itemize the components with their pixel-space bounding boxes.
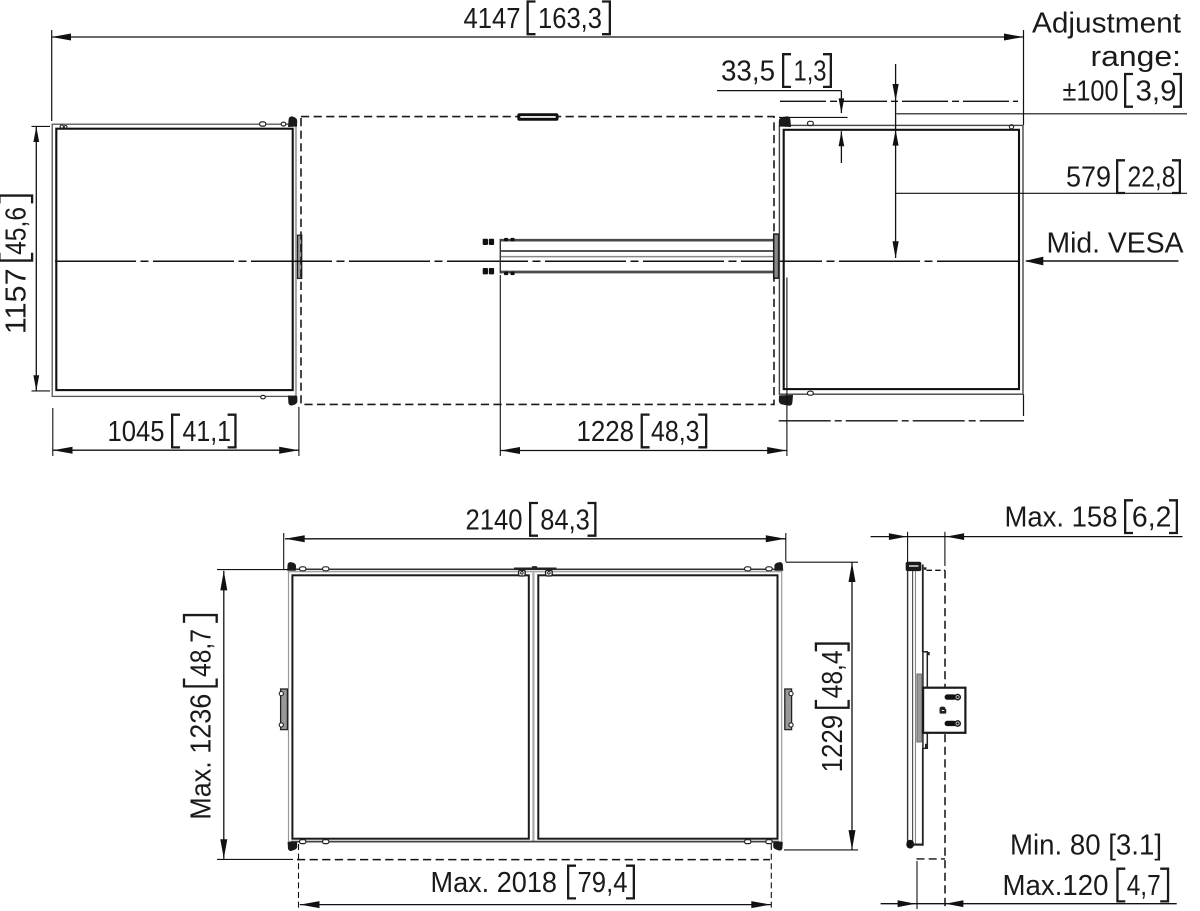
svg-text:45,6: 45,6 — [0, 207, 32, 255]
svg-text:79,4: 79,4 — [578, 866, 628, 898]
svg-text:1157: 1157 — [0, 268, 32, 334]
svg-text:579: 579 — [1066, 161, 1111, 193]
svg-text:±100: ±100 — [1063, 74, 1119, 106]
svg-text:Adjustment: Adjustment — [1032, 6, 1181, 38]
svg-text:6,2: 6,2 — [1132, 501, 1172, 533]
svg-text:4,7: 4,7 — [1127, 869, 1161, 901]
svg-text:41,1: 41,1 — [183, 415, 232, 447]
svg-text:1228: 1228 — [577, 415, 635, 447]
svg-text:163,3: 163,3 — [538, 2, 602, 34]
svg-text:33,5: 33,5 — [721, 55, 775, 87]
svg-text:22,8: 22,8 — [1128, 161, 1176, 193]
svg-text:48,7: 48,7 — [184, 629, 216, 677]
svg-text:Max. 1236: Max. 1236 — [184, 694, 216, 820]
svg-text:3,9: 3,9 — [1136, 74, 1177, 106]
svg-text:Max. 158: Max. 158 — [1005, 501, 1118, 533]
svg-text:Mid. VESA: Mid. VESA — [1047, 227, 1184, 259]
svg-text:Max. 2018: Max. 2018 — [431, 866, 558, 898]
svg-text:1229: 1229 — [816, 715, 848, 773]
svg-text:2140: 2140 — [466, 503, 523, 535]
svg-text:4147: 4147 — [464, 2, 521, 34]
svg-text:range:: range: — [1091, 40, 1182, 72]
svg-text:Max.120: Max.120 — [1003, 869, 1109, 901]
svg-text:48,4: 48,4 — [816, 650, 848, 698]
svg-text:Min. 80 [3.1]: Min. 80 [3.1] — [1010, 829, 1162, 861]
svg-text:48,3: 48,3 — [651, 415, 700, 447]
svg-text:84,3: 84,3 — [540, 503, 590, 535]
svg-text:1,3: 1,3 — [794, 55, 827, 87]
svg-text:1045: 1045 — [108, 415, 165, 447]
